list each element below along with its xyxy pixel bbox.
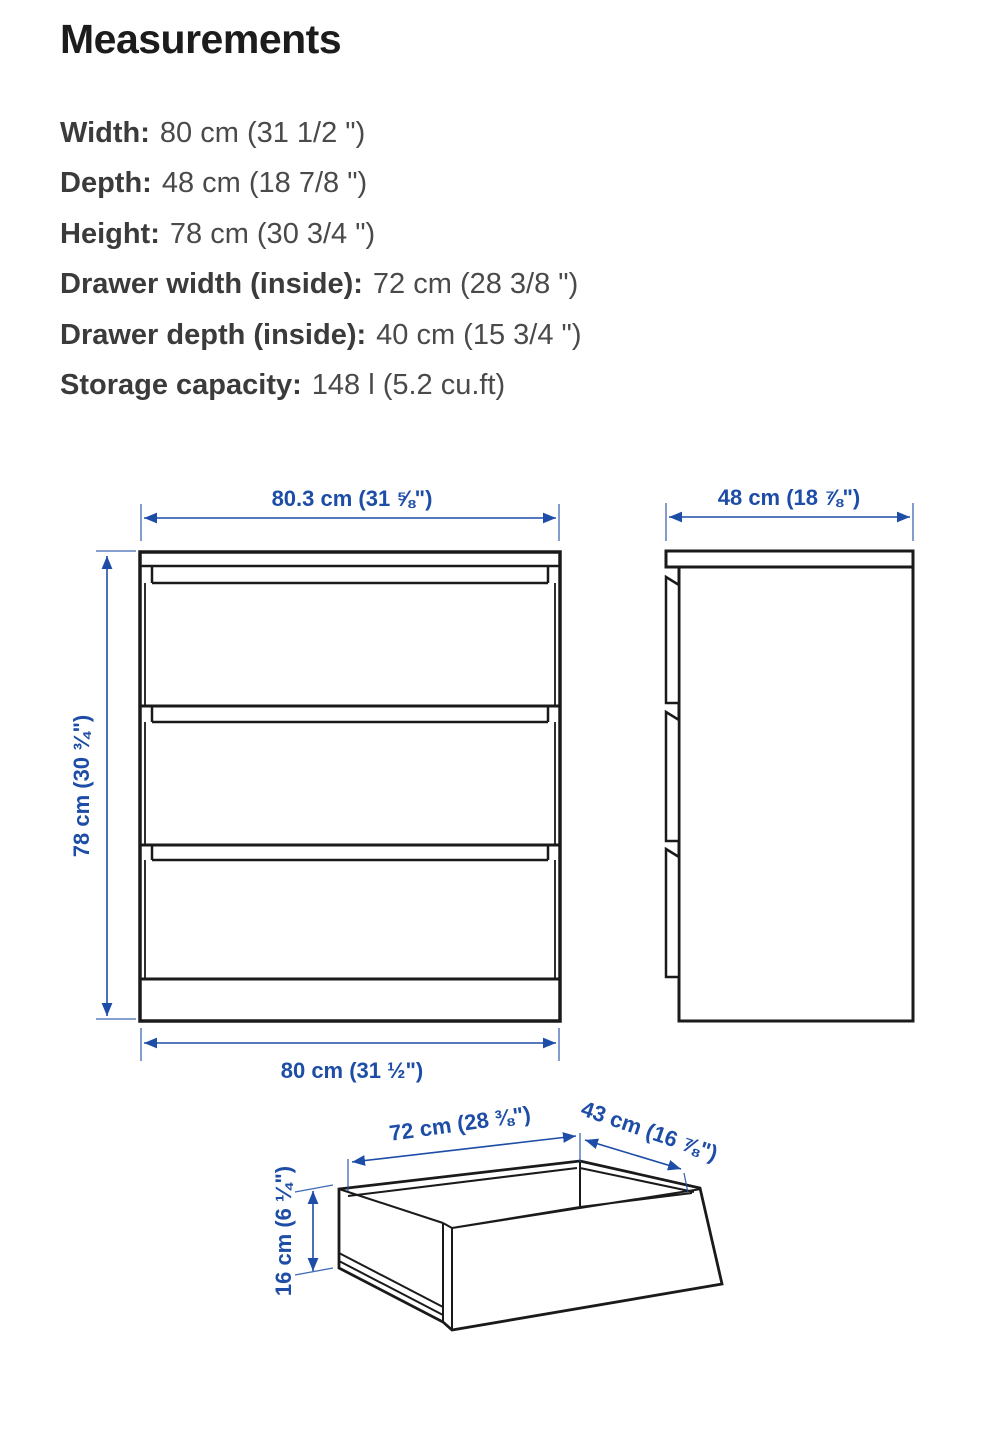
drawer-height-label: 16 cm (6 ¼") — [271, 1166, 296, 1296]
front-width-bottom-label: 80 cm (31 ½") — [281, 1058, 424, 1083]
measurements-page: Measurements Width:80 cm (31 1/2 ") Dept… — [0, 0, 997, 1440]
measurement-diagram: 80.3 cm (31 ⅝") 78 cm (30 ¾") 80 cm (31 … — [0, 0, 997, 1440]
drawer-depth-label: 43 cm (16 ⅞") — [578, 1096, 721, 1166]
side-depth-dimension: 48 cm (18 ⅞") — [666, 485, 913, 541]
drawer-structure — [339, 1161, 722, 1330]
side-view-drawing: 48 cm (18 ⅞") — [666, 485, 913, 1021]
side-depth-label: 48 cm (18 ⅞") — [718, 485, 861, 510]
front-width-bottom-dimension: 80 cm (31 ½") — [141, 1028, 559, 1083]
front-view-drawing: 80.3 cm (31 ⅝") 78 cm (30 ¾") 80 cm (31 … — [69, 486, 560, 1083]
front-width-top-dimension: 80.3 cm (31 ⅝") — [141, 486, 559, 541]
drawer-view-drawing: 72 cm (28 ⅜") 43 cm (16 ⅞") 16 cm (6 ¼") — [271, 1096, 722, 1330]
side-view-structure — [666, 551, 913, 1021]
front-view-structure — [140, 552, 560, 1021]
front-width-top-label: 80.3 cm (31 ⅝") — [272, 486, 433, 511]
front-height-label: 78 cm (30 ¾") — [69, 715, 94, 858]
drawer-width-label: 72 cm (28 ⅜") — [388, 1101, 533, 1146]
drawer-height-dimension: 16 cm (6 ¼") — [271, 1166, 333, 1296]
front-height-dimension: 78 cm (30 ¾") — [69, 551, 136, 1019]
